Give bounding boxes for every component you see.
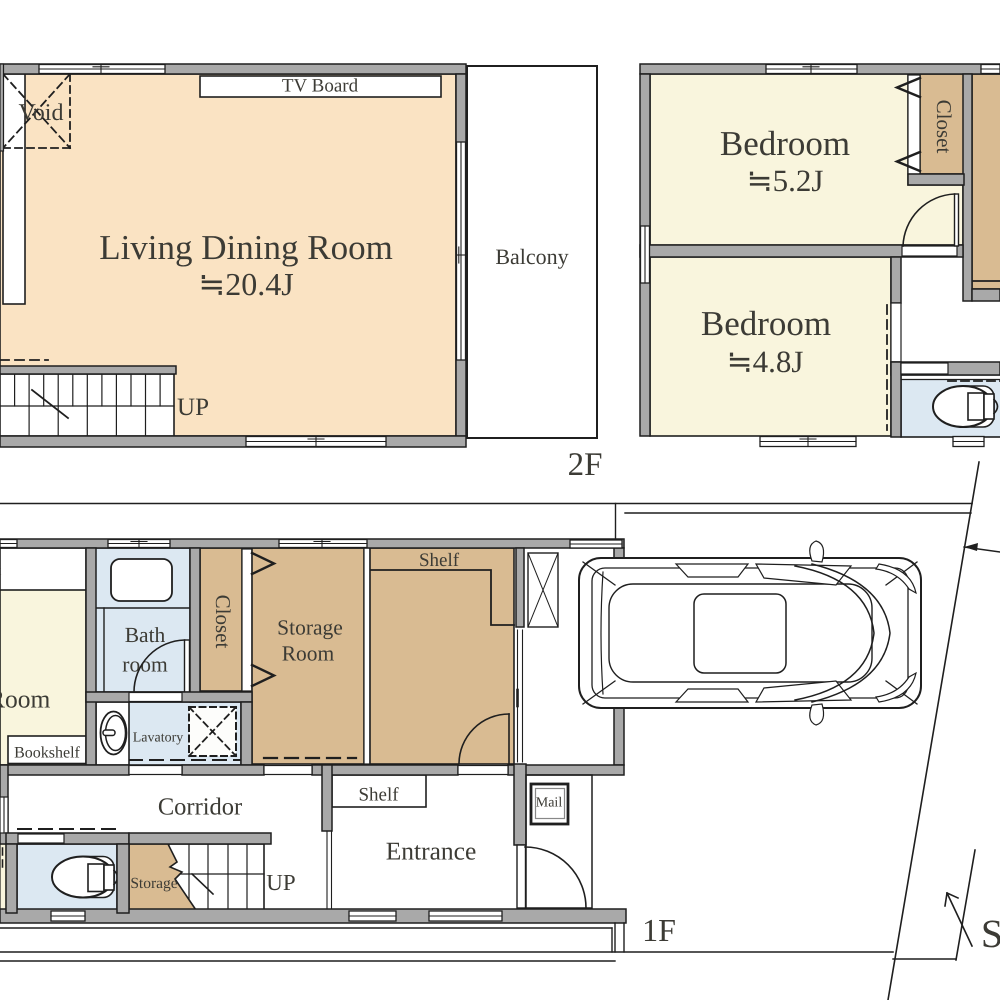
svg-text:2F: 2F — [568, 447, 603, 483]
svg-text:TV Board: TV Board — [282, 76, 359, 97]
svg-text:Entrance: Entrance — [386, 837, 477, 866]
svg-text:Mail: Mail — [536, 796, 563, 811]
svg-text:Storage: Storage — [130, 875, 177, 892]
svg-text:S: S — [981, 911, 1000, 956]
svg-text:Balcony: Balcony — [495, 244, 568, 269]
svg-text:Bath: Bath — [125, 623, 166, 647]
svg-text:Void: Void — [19, 100, 64, 126]
svg-text:UP: UP — [266, 870, 295, 895]
svg-text:≒4.8J: ≒4.8J — [727, 344, 804, 379]
svg-text:≒5.2J: ≒5.2J — [747, 163, 824, 198]
svg-text:Shelf: Shelf — [358, 785, 399, 806]
svg-text:Room: Room — [282, 642, 335, 666]
svg-text:room: room — [122, 653, 168, 677]
svg-text:Bedroom: Bedroom — [701, 304, 831, 343]
svg-text:Shelf: Shelf — [419, 550, 460, 571]
svg-text:Lavatory: Lavatory — [133, 731, 184, 746]
svg-text:Room: Room — [0, 685, 51, 714]
svg-text:Storage: Storage — [277, 616, 343, 640]
svg-text:≒20.4J: ≒20.4J — [198, 266, 293, 302]
svg-text:1F: 1F — [642, 912, 676, 948]
svg-text:Bookshelf: Bookshelf — [14, 745, 80, 762]
svg-text:Living Dining Room: Living Dining Room — [99, 228, 393, 267]
svg-text:Bedroom: Bedroom — [720, 124, 850, 163]
svg-text:Closet: Closet — [211, 595, 235, 649]
svg-text:UP: UP — [177, 394, 209, 421]
svg-text:Corridor: Corridor — [158, 794, 242, 821]
svg-text:Closet: Closet — [932, 100, 956, 154]
